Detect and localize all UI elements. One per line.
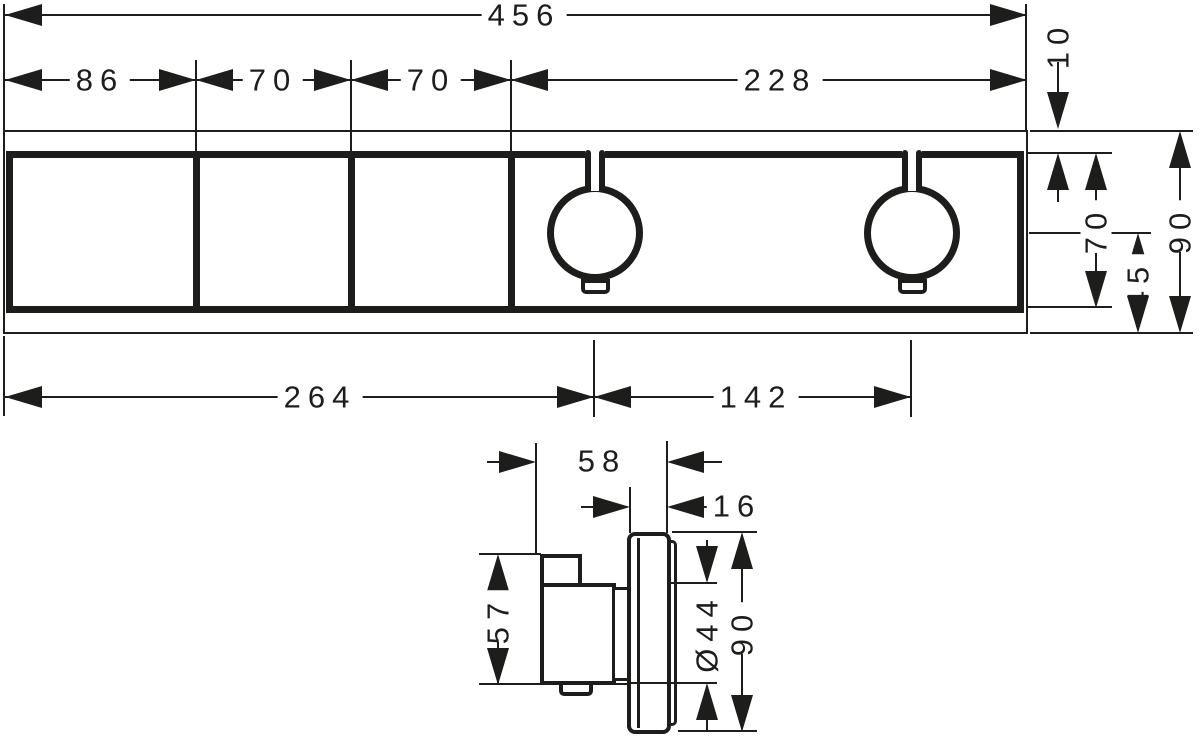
dim-arrow: [696, 683, 718, 720]
dim-arrow: [667, 496, 704, 518]
dim-line: [1057, 62, 1059, 94]
knob-circle: [547, 185, 643, 281]
dim-label-segment-3: 70: [401, 65, 461, 96]
knob-stem: [902, 150, 908, 191]
dim-label-segment-1: 86: [70, 65, 130, 96]
dim-arrow: [1169, 296, 1191, 333]
dim-arrow: [314, 69, 351, 91]
dim-line: [741, 654, 743, 697]
dim-arrow: [5, 69, 42, 91]
dim-line: [1179, 252, 1181, 299]
knob-bottom-tab: [581, 279, 610, 294]
dim-arrow: [351, 69, 388, 91]
dim-label-knob-diameter: Ø44: [692, 587, 723, 679]
dim-arrow: [196, 69, 233, 91]
dim-label-unit-height: 70: [1081, 200, 1112, 260]
dim-arrow: [557, 386, 594, 408]
dim-label-left-to-first-knob: 264: [278, 382, 363, 413]
dim-arrow: [667, 451, 704, 473]
dim-label-knob-spacing: 142: [714, 382, 799, 413]
panel-divider: [348, 158, 355, 306]
knob-stem: [599, 150, 605, 191]
dim-label-total-depth: 58: [572, 446, 632, 477]
dim-arrow: [593, 496, 630, 518]
dim-arrow: [1085, 153, 1107, 190]
dim-arrow: [731, 695, 753, 732]
dim-label-escutcheon-depth: 16: [707, 491, 767, 522]
dim-line: [704, 461, 722, 463]
dim-arrow: [990, 4, 1027, 26]
knob-stem: [585, 150, 591, 191]
dim-arrow: [1085, 271, 1107, 308]
knob-bottom-tab: [898, 279, 927, 294]
dim-arrow: [594, 386, 631, 408]
dim-arrow: [159, 69, 196, 91]
dim-label-segment-2: 70: [243, 65, 303, 96]
dim-arrow: [5, 386, 42, 408]
dim-arrow: [474, 69, 511, 91]
dim-line: [1057, 188, 1059, 202]
dim-arrow: [696, 546, 718, 583]
dim-label-overall-width: 456: [482, 0, 567, 31]
dim-arrow: [499, 451, 536, 473]
panel-divider: [193, 158, 200, 306]
dimension-drawing: 456 86 70 70 228 10 70 45: [0, 0, 1200, 738]
escutcheon-plate: [627, 532, 671, 734]
dim-arrow: [1127, 296, 1149, 333]
dim-arrow: [731, 532, 753, 569]
dim-arrow: [990, 69, 1027, 91]
dim-arrow: [1169, 131, 1191, 168]
escutcheon-face-line: [637, 538, 640, 728]
dim-arrow: [487, 554, 509, 591]
knob-stem: [916, 150, 922, 191]
valve-body: [540, 583, 616, 685]
dim-arrow: [487, 648, 509, 685]
dim-arrow: [1047, 92, 1069, 129]
dim-arrow: [874, 386, 911, 408]
panel-divider: [508, 158, 515, 306]
dim-arrow: [5, 4, 42, 26]
valve-body-top-step: [540, 554, 582, 587]
dim-label-segment-4: 228: [738, 65, 823, 96]
knob-circle: [864, 185, 960, 281]
dim-line: [706, 717, 708, 730]
dim-arrow: [1047, 153, 1069, 190]
dim-arrow: [511, 69, 548, 91]
